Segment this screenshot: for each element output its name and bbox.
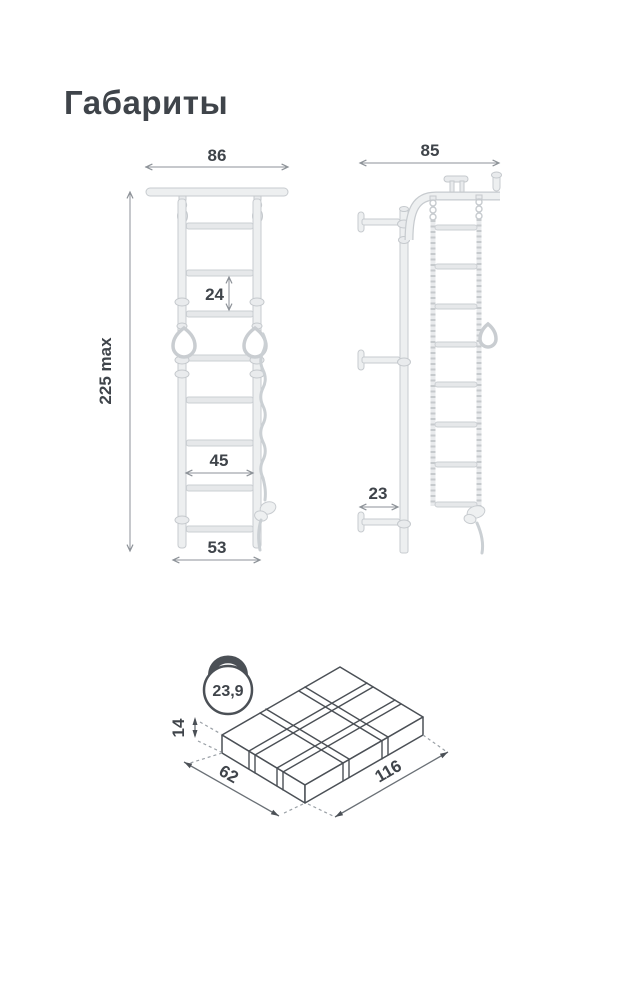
wall-post xyxy=(398,207,411,554)
dim-wall-bracket-depth: 23 xyxy=(360,484,398,510)
pull-up-bar xyxy=(146,188,288,196)
gymnastic-ring-side xyxy=(480,324,496,347)
ladder-rungs xyxy=(187,223,254,532)
package-depth-label: 62 xyxy=(216,761,242,787)
hanger-hooks xyxy=(178,196,263,223)
dimensions-page: Габариты 86 225 max xyxy=(0,0,629,1000)
front-overall-height-label: 225 max xyxy=(96,337,115,405)
inner-width-label: 45 xyxy=(210,451,229,470)
side-view: 85 xyxy=(358,141,502,553)
package-weight-label: 23,9 xyxy=(212,683,243,700)
gymnastic-ring-left xyxy=(173,328,195,357)
rope-knot-side xyxy=(463,504,486,553)
base-width-label: 53 xyxy=(208,538,227,557)
wall-bracket-depth-label: 23 xyxy=(369,484,388,503)
dim-front-overall-height: 225 max xyxy=(96,192,133,551)
package-height-label: 14 xyxy=(169,718,188,737)
rope-ladder xyxy=(433,219,479,509)
front-view: 86 225 max xyxy=(96,146,288,563)
side-overall-depth-label: 85 xyxy=(421,141,440,160)
package-view: 14 62 116 23,9 xyxy=(169,660,448,818)
dim-package-height: 14 xyxy=(169,717,198,738)
dim-inner-width: 45 xyxy=(186,451,253,476)
kettlebell-icon: 23,9 xyxy=(204,660,252,715)
dim-front-overall-width: 86 xyxy=(145,146,288,170)
dim-side-overall-depth: 85 xyxy=(360,141,499,166)
dim-rung-spacing: 24 xyxy=(205,277,232,310)
front-overall-width-label: 86 xyxy=(208,146,227,165)
rung-spacing-label: 24 xyxy=(205,285,224,304)
dimensions-diagram: 86 225 max xyxy=(0,0,629,1000)
